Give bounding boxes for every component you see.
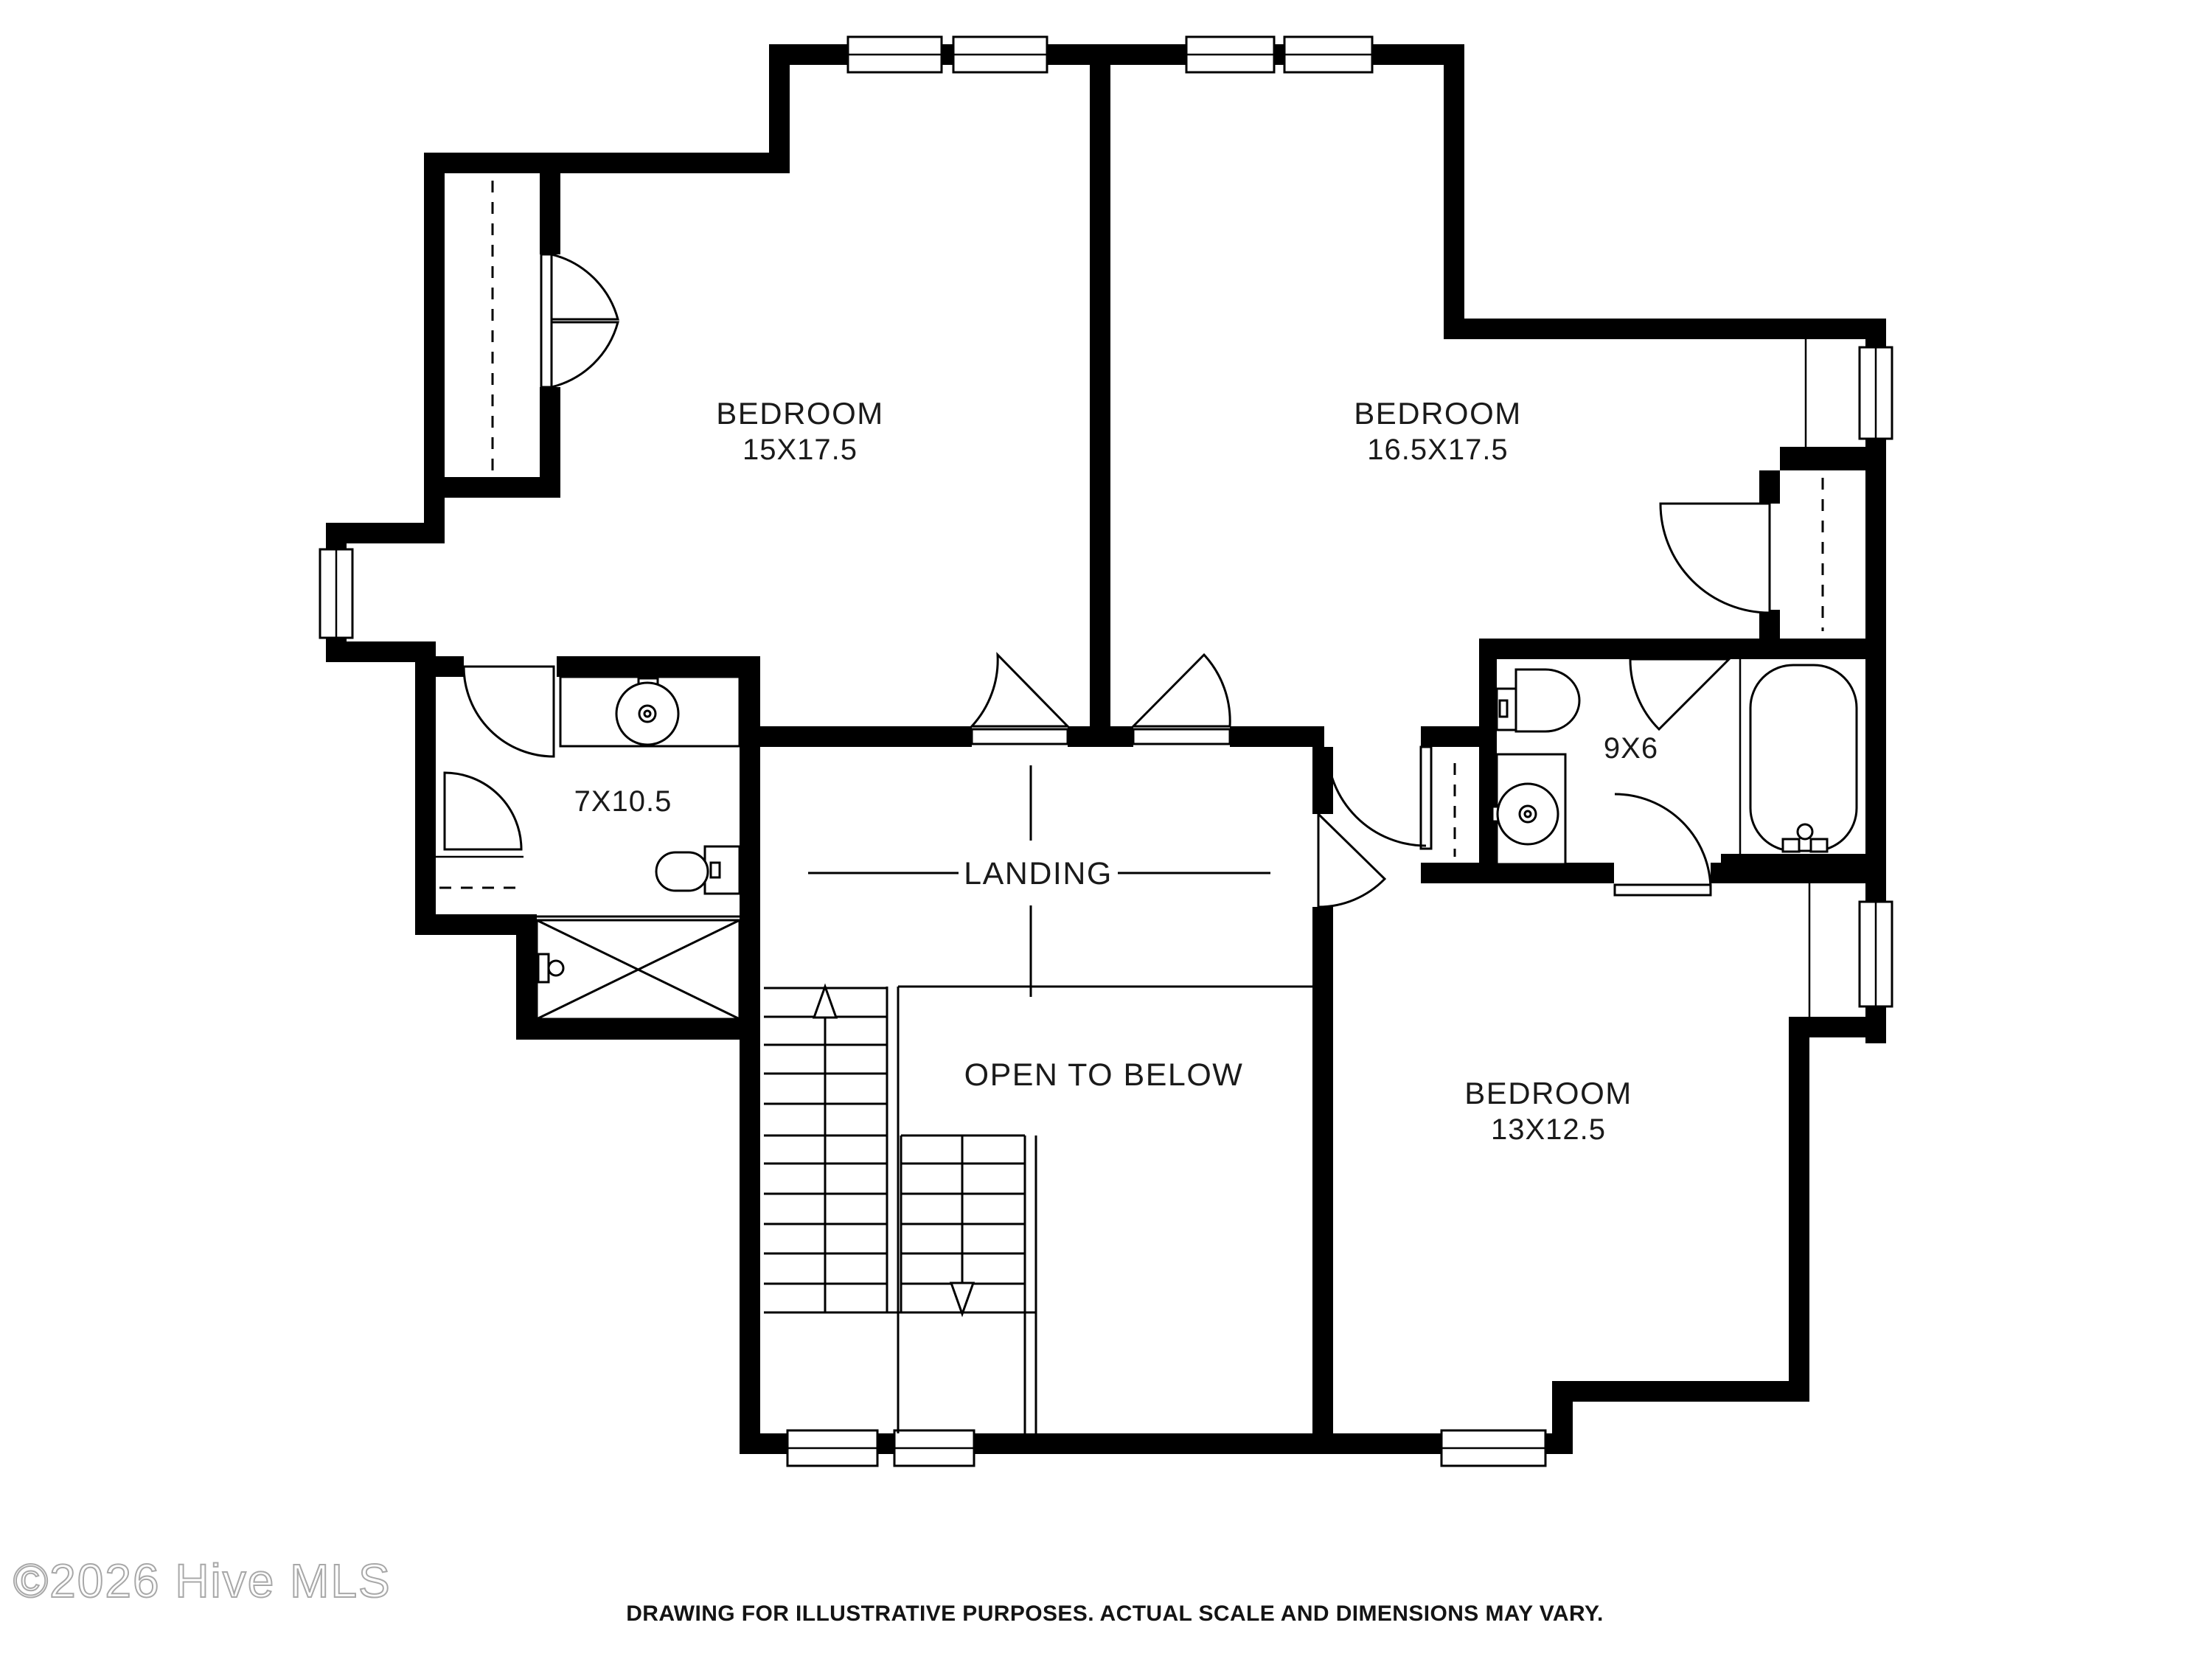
watermark: ©2026 Hive MLS (13, 1554, 392, 1607)
disclaimer: DRAWING FOR ILLUSTRATIVE PURPOSES. ACTUA… (626, 1601, 1604, 1626)
door-swing (1615, 794, 1711, 895)
window (953, 37, 1047, 72)
bath2-dims: 9X6 (1604, 732, 1658, 765)
bath1-dims: 7X10.5 (574, 785, 672, 818)
floor-plan-canvas: BEDROOM 15X17.5 BEDROOM 16.5X17.5 7X10.5… (0, 0, 2212, 1659)
toilet (656, 846, 740, 894)
door-swing (1318, 814, 1385, 907)
floor-plan-drawing: BEDROOM 15X17.5 BEDROOM 16.5X17.5 7X10.5… (0, 0, 2212, 1659)
window (848, 37, 942, 72)
bedroom1-dims: 15X17.5 (742, 434, 858, 466)
staircase (764, 987, 1312, 1433)
window (1441, 1430, 1545, 1466)
bedroom2-label: BEDROOM (1354, 396, 1522, 431)
window (1860, 347, 1892, 439)
bedroom3-label: BEDROOM (1464, 1076, 1632, 1110)
door-swing (1133, 655, 1230, 744)
door-swing (1660, 504, 1770, 613)
door-swing (972, 655, 1068, 744)
door-swing (1630, 659, 1729, 729)
toilet (1497, 669, 1579, 731)
door-swing (464, 667, 554, 757)
window (1860, 902, 1892, 1006)
stairs-up-arrow (814, 987, 836, 1018)
door-swing (445, 773, 521, 849)
shower (537, 917, 740, 1019)
window (894, 1430, 974, 1466)
bath1-fixtures (537, 677, 740, 1019)
open-to-below-label: OPEN TO BELOW (964, 1057, 1244, 1093)
vanity-sink (560, 677, 740, 746)
bedroom1-label: BEDROOM (716, 396, 884, 431)
stairs-down-arrow (951, 1283, 973, 1314)
window (320, 549, 352, 638)
window (1186, 37, 1274, 72)
vanity-sink (1492, 754, 1565, 864)
double-door-swing (541, 254, 618, 387)
bedroom3-dims: 13X12.5 (1491, 1113, 1606, 1146)
window (787, 1430, 877, 1466)
door-swing (1327, 747, 1431, 849)
bedroom2-dims: 16.5X17.5 (1367, 434, 1508, 466)
bathtub (1740, 659, 1857, 858)
window (1284, 37, 1372, 72)
landing-label: LANDING (964, 856, 1113, 891)
